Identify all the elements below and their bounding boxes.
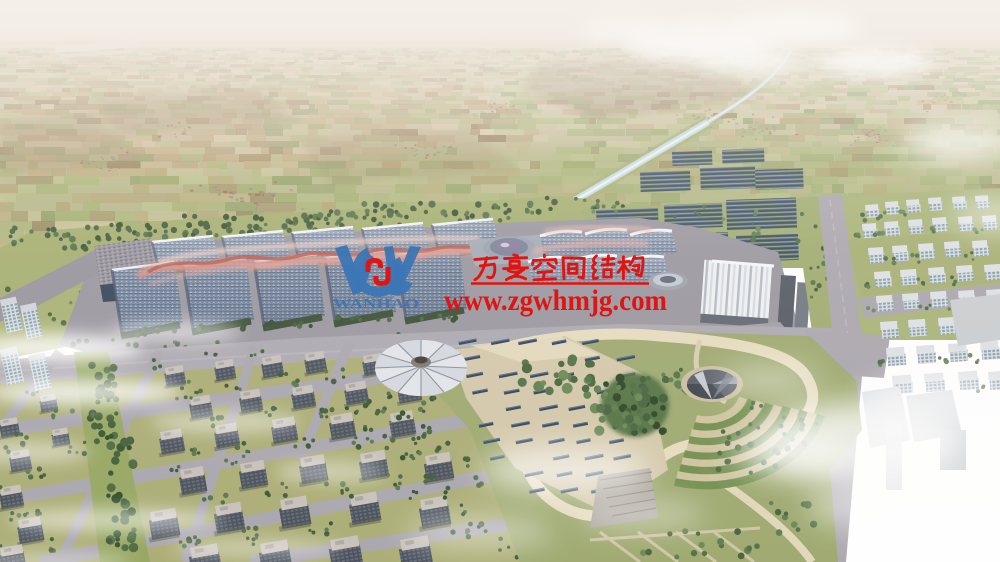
svg-text:WANHAO: WANHAO bbox=[333, 296, 419, 311]
svg-text:www.zgwhmjg.com: www.zgwhmjg.com bbox=[444, 285, 667, 317]
